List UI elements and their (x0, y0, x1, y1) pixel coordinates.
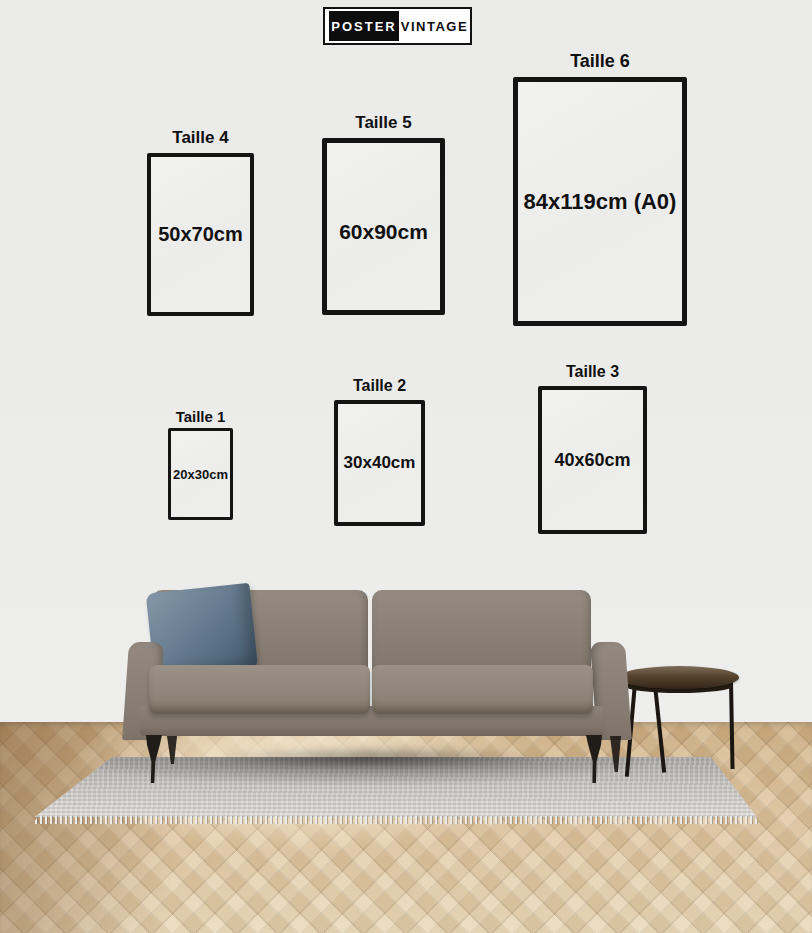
size-group-taille-6: Taille 6 84x119cm (A0) (513, 51, 687, 326)
table-leg-right (729, 681, 735, 769)
size-frame-taille-6: 84x119cm (A0) (513, 77, 687, 326)
size-dimensions-taille-2: 30x40cm (344, 453, 416, 473)
sofa-leg-front-left (146, 735, 162, 783)
size-group-taille-4: Taille 4 50x70cm (147, 128, 254, 316)
size-dimensions-taille-6: 84x119cm (A0) (524, 189, 677, 215)
size-group-taille-5: Taille 5 60x90cm (322, 113, 445, 315)
size-group-taille-1: Taille 1 20x30cm (168, 408, 233, 520)
sofa-seat-cushion-right (372, 665, 593, 714)
size-frame-taille-1: 20x30cm (168, 428, 233, 520)
size-label-taille-1: Taille 1 (168, 408, 233, 425)
size-label-taille-6: Taille 6 (513, 51, 687, 72)
size-frame-taille-5: 60x90cm (322, 138, 445, 315)
logo-poster-text: POSTER (331, 19, 396, 34)
poster-size-chart-image: POSTER VINTAGE Taille 4 50x70cm Taille 5… (0, 0, 812, 933)
size-label-taille-5: Taille 5 (322, 113, 445, 133)
rug-fringe (30, 816, 760, 824)
logo-vintage-block: VINTAGE (399, 19, 470, 34)
size-dimensions-taille-3: 40x60cm (554, 450, 630, 471)
sofa-seat-cushion-left (149, 665, 370, 714)
logo-vintage-text: VINTAGE (401, 19, 468, 34)
sofa-leg-front-right (586, 735, 602, 783)
size-group-taille-2: Taille 2 30x40cm (334, 377, 425, 526)
size-dimensions-taille-4: 50x70cm (158, 223, 243, 246)
table-top (619, 666, 739, 689)
logo-poster-block: POSTER (329, 11, 399, 41)
size-dimensions-taille-5: 60x90cm (339, 220, 428, 244)
side-table (615, 663, 763, 778)
size-dimensions-taille-1: 20x30cm (173, 467, 228, 482)
sofa-leg-rear-right (610, 736, 621, 772)
size-group-taille-3: Taille 3 40x60cm (538, 363, 647, 534)
size-label-taille-2: Taille 2 (334, 377, 425, 395)
size-label-taille-4: Taille 4 (147, 128, 254, 148)
size-frame-taille-3: 40x60cm (538, 386, 647, 534)
brand-logo: POSTER VINTAGE (323, 7, 472, 45)
size-label-taille-3: Taille 3 (538, 363, 647, 381)
size-frame-taille-2: 30x40cm (334, 400, 425, 526)
table-leg-left-rear (653, 685, 666, 773)
sofa (126, 585, 632, 785)
size-frame-taille-4: 50x70cm (147, 153, 254, 316)
sofa-leg-rear-left (167, 736, 177, 764)
